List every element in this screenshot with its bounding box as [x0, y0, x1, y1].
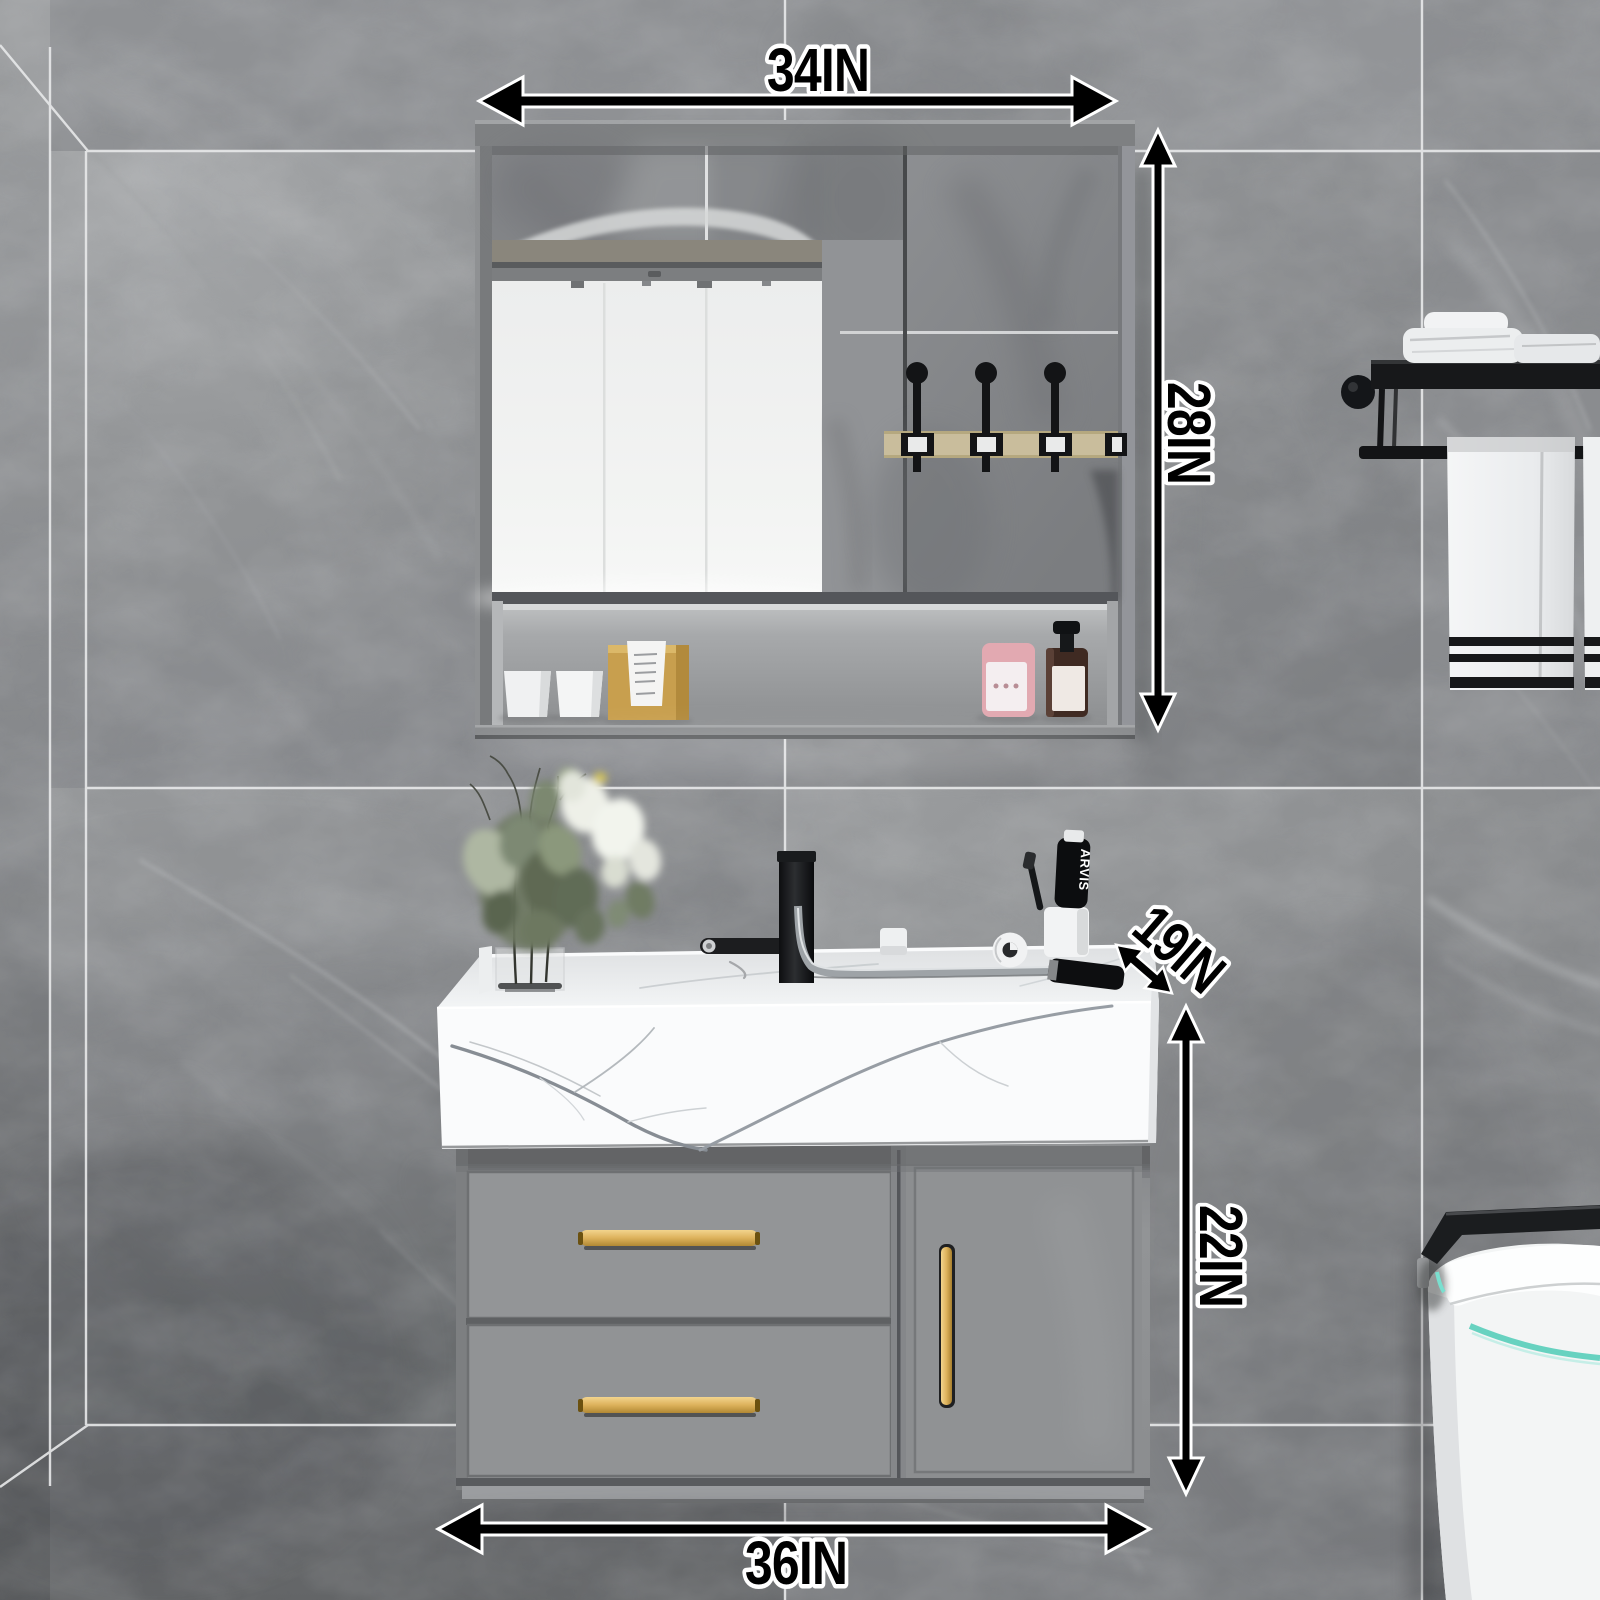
svg-text:22IN: 22IN	[1187, 1205, 1255, 1307]
svg-text:28IN: 28IN	[1155, 382, 1223, 484]
svg-text:ARVIS: ARVIS	[1076, 848, 1093, 891]
svg-text:36IN: 36IN	[745, 1529, 847, 1597]
svg-text:34IN: 34IN	[767, 36, 869, 104]
